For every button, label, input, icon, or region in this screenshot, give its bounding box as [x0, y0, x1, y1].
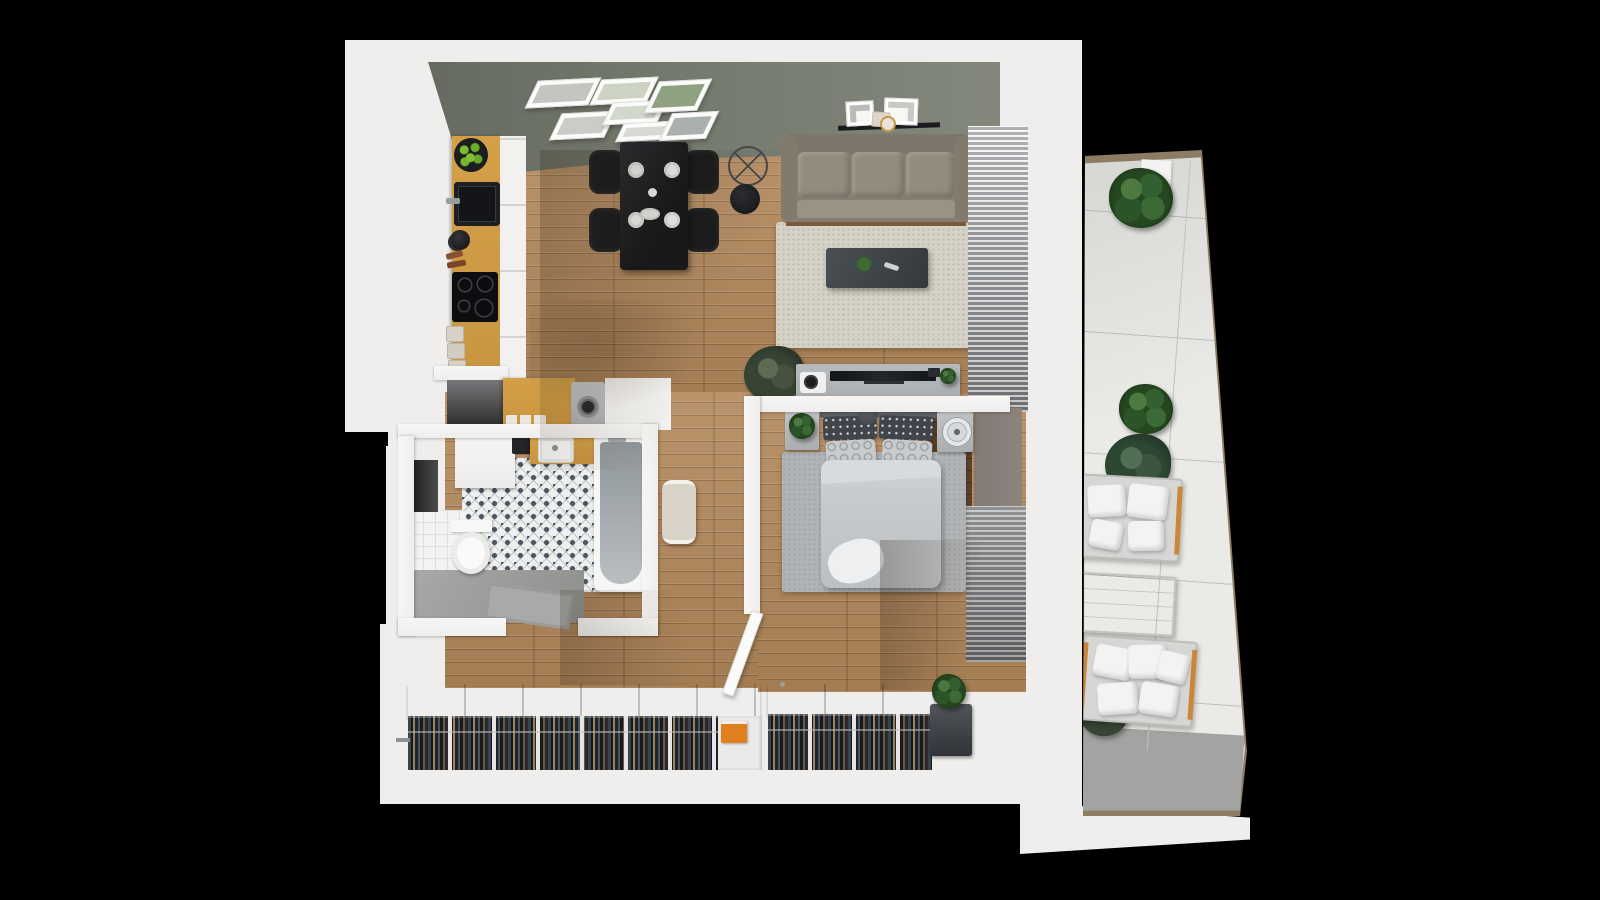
washing-machine [571, 382, 605, 430]
balcony-corner-box [1140, 159, 1171, 187]
flower-bouquet [642, 172, 655, 185]
place-setting-1 [628, 162, 644, 178]
toilet-bowl [452, 532, 490, 574]
flower-vase [648, 188, 657, 197]
bathtub [594, 430, 648, 592]
laundry-wall-stub [434, 366, 508, 380]
serving-platter [640, 208, 660, 220]
laundry-counter [503, 378, 575, 430]
bed-throw-highlight [823, 532, 889, 589]
print-art-city-sketch [556, 116, 609, 135]
sideboard-speaker [928, 368, 940, 377]
sofa-cushion-3 [906, 152, 954, 198]
bench-cushion [1137, 681, 1180, 719]
room-dining [0, 0, 1600, 900]
bedroom-wardrobe-top [768, 684, 934, 716]
framed-print-7 [659, 111, 720, 141]
place-setting-4 [664, 212, 680, 228]
bench-cushion [1088, 518, 1125, 552]
balcony-table [1068, 571, 1177, 636]
bed-pillow-light-right [881, 439, 932, 470]
shelf-frame-1 [845, 100, 874, 126]
bed-headboard [820, 406, 942, 418]
hall-wardrobe-top [408, 684, 760, 718]
dining-table [620, 142, 688, 270]
nightstand-plant [789, 413, 815, 439]
bedroom-door-open [722, 610, 763, 697]
sofa-armrest-right [955, 136, 971, 220]
wardrobe-rail-end [396, 738, 410, 742]
print-art-grass [609, 105, 660, 120]
print-art-palm [651, 84, 705, 108]
arc-lamp-base [730, 184, 760, 214]
balcony-bench-top [1075, 473, 1183, 562]
hamper-plant [932, 674, 966, 708]
shadow-dining-floor [540, 150, 860, 470]
living-area-rug [776, 222, 974, 348]
bathroom-wall-bottom-right [578, 618, 658, 636]
shelf-frame-2 [884, 97, 919, 125]
bathroom-vanity [455, 434, 515, 488]
nightstand-right [937, 412, 973, 452]
wall-slab-mid [388, 430, 1060, 628]
open-shelf-niche [447, 380, 503, 426]
sofa [781, 134, 971, 224]
bench-cushion [1128, 644, 1167, 679]
room-laundry [0, 0, 1600, 900]
bathroom-wall-bottom-left [398, 618, 506, 636]
dining-chair-4 [685, 208, 719, 252]
wall-slab-bottom [380, 624, 1060, 804]
potted-palm [744, 346, 804, 402]
print-art-landscape [532, 83, 594, 104]
orange-storage-box [721, 721, 747, 743]
round-mirror-icon [880, 116, 896, 132]
living-window-blinds [968, 126, 1028, 412]
bench-cushion [1126, 483, 1170, 522]
coffee-table [826, 248, 928, 288]
bathroom-wall-left [398, 436, 414, 636]
bedroom-divider-wall [744, 396, 760, 614]
framed-print-1 [524, 77, 601, 108]
bed-pillow-dark-right [879, 415, 934, 441]
cups-row [506, 415, 546, 428]
cutting-board-1 [446, 250, 464, 260]
dining-chair-3 [685, 150, 719, 194]
bedroom-dark-floor-patch [928, 412, 972, 506]
sink-counter [530, 434, 594, 464]
dining-chair-1 [589, 150, 623, 194]
sofa-armrest-left [781, 136, 797, 220]
room-bathroom [0, 0, 1600, 900]
print-art-botanical [597, 82, 652, 100]
vanity-appliance [512, 436, 532, 454]
bathroom-gray-floor [412, 570, 584, 622]
arc-lamp-wheel-icon [728, 146, 768, 186]
room-kitchen [0, 0, 1600, 900]
bathroom-sink [538, 437, 574, 463]
bench-cushion [1128, 521, 1165, 552]
hall-wardrobe-end-cabinet [718, 716, 762, 770]
bedroom-window-blinds [966, 506, 1026, 662]
shadow-hallway-floor [560, 590, 770, 685]
wood-floor-bedroom [758, 394, 1026, 692]
balcony-plant-top [1109, 168, 1173, 228]
bed-bolster-pillow [858, 404, 878, 424]
bench-cushion [1087, 484, 1127, 518]
balcony-floor [1083, 146, 1249, 816]
fruit-bowl [454, 138, 488, 172]
towel-radiator [662, 480, 696, 544]
wood-floor-living-dining [525, 146, 1003, 396]
hall-wardrobe-clothes [408, 716, 720, 770]
bathroom-outer-jut [386, 446, 412, 626]
laundry-hamper [930, 704, 972, 756]
room-living [0, 0, 1600, 900]
bathroom-pattern-floor [462, 458, 644, 592]
bedroom-wardrobe-clothes [768, 714, 932, 770]
balustrade-line [1147, 160, 1191, 750]
bedroom-area-rug [782, 452, 966, 592]
sofa-seat-front [797, 200, 955, 218]
wall-slab-under-balcony [1020, 802, 1250, 854]
bench-cushion [1092, 643, 1135, 682]
kitchen-sink [454, 182, 500, 226]
walls-structure [0, 0, 1600, 900]
balcony-bench-bottom [1078, 634, 1198, 728]
framed-print-3 [589, 77, 659, 106]
bedroom-taupe-wall [974, 408, 1022, 508]
laundry-cabinet [605, 378, 671, 430]
toilet-tank [450, 520, 492, 532]
bench-cushion [1097, 681, 1139, 716]
sideboard-plant [940, 368, 956, 384]
table-fan-icon [942, 417, 972, 447]
tub-faucet-icon [608, 434, 626, 442]
room-balcony [0, 0, 1600, 900]
nightstand-left [785, 410, 819, 450]
dining-chair-2 [589, 208, 623, 252]
balcony-plant-bottom [1079, 686, 1129, 736]
storage-jar-2 [447, 343, 465, 359]
kitchen-cabinets [500, 136, 526, 402]
sofa-wood-base [786, 222, 966, 226]
wall-slab-top [345, 40, 1060, 432]
sink-tap-icon [552, 445, 558, 451]
washer-door-icon [577, 396, 599, 418]
remote-control [884, 262, 900, 271]
light-shadows [0, 0, 1600, 900]
floors [0, 0, 1600, 900]
tv-sideboard [796, 364, 960, 402]
bed-duvet-fold [821, 460, 941, 484]
framed-print-4 [602, 100, 668, 126]
cutting-board-2 [447, 259, 467, 268]
room-hallway [0, 0, 1600, 900]
sofa-cushion-2 [852, 152, 904, 198]
sofa-cushion-1 [798, 152, 850, 198]
place-setting-3 [628, 212, 644, 228]
sage-feature-wall [428, 62, 1000, 174]
tv-screen [830, 371, 936, 381]
framed-print-5 [615, 121, 673, 142]
turntable [800, 372, 826, 393]
room-bedroom [0, 0, 1600, 900]
scene-apartment-floorplan [0, 0, 1600, 900]
wall-niche-dark [410, 460, 438, 512]
wall-slab-right [1020, 40, 1082, 850]
shadow-kitchen-floor [530, 300, 700, 410]
storage-jar-3 [448, 360, 466, 376]
balcony-slab [1083, 146, 1249, 816]
bedroom-top-wall [758, 396, 1010, 412]
bed-duvet [821, 460, 941, 588]
faucet-icon [446, 198, 460, 204]
wall-shelf [838, 122, 940, 131]
bathroom-white-tile-floor [412, 510, 466, 594]
wood-floor-hallway [445, 392, 763, 688]
print-art-skyline [666, 116, 712, 136]
kettle [450, 230, 470, 250]
door-handle-icon [780, 682, 785, 687]
bathroom-wall-right [642, 424, 658, 636]
balcony-lower-terrace [1083, 146, 1249, 816]
bench-cushion [1155, 649, 1191, 685]
framed-print-2 [549, 111, 617, 141]
place-setting-2 [664, 162, 680, 178]
sofa-backrest [783, 134, 969, 154]
bed-pillow-light-left [825, 439, 876, 470]
tv-stand [864, 381, 904, 384]
coffee-table-plant [856, 256, 872, 272]
balcony-plant-mid-2 [1105, 434, 1171, 494]
framed-print-6 [644, 79, 713, 114]
shadow-bedroom-floor [880, 540, 1030, 690]
bathroom-wall-top [398, 424, 656, 438]
door-mat [484, 582, 574, 630]
print-art-sketch [622, 126, 665, 137]
kitchen-counter [452, 136, 502, 402]
storage-jar-1 [446, 326, 464, 342]
bed-pillow-dark-left [823, 415, 878, 441]
bathtub-interior [600, 442, 642, 584]
cooktop [452, 272, 498, 322]
balcony-plant-mid-1 [1119, 384, 1173, 434]
shelf-frame-small [871, 111, 890, 127]
